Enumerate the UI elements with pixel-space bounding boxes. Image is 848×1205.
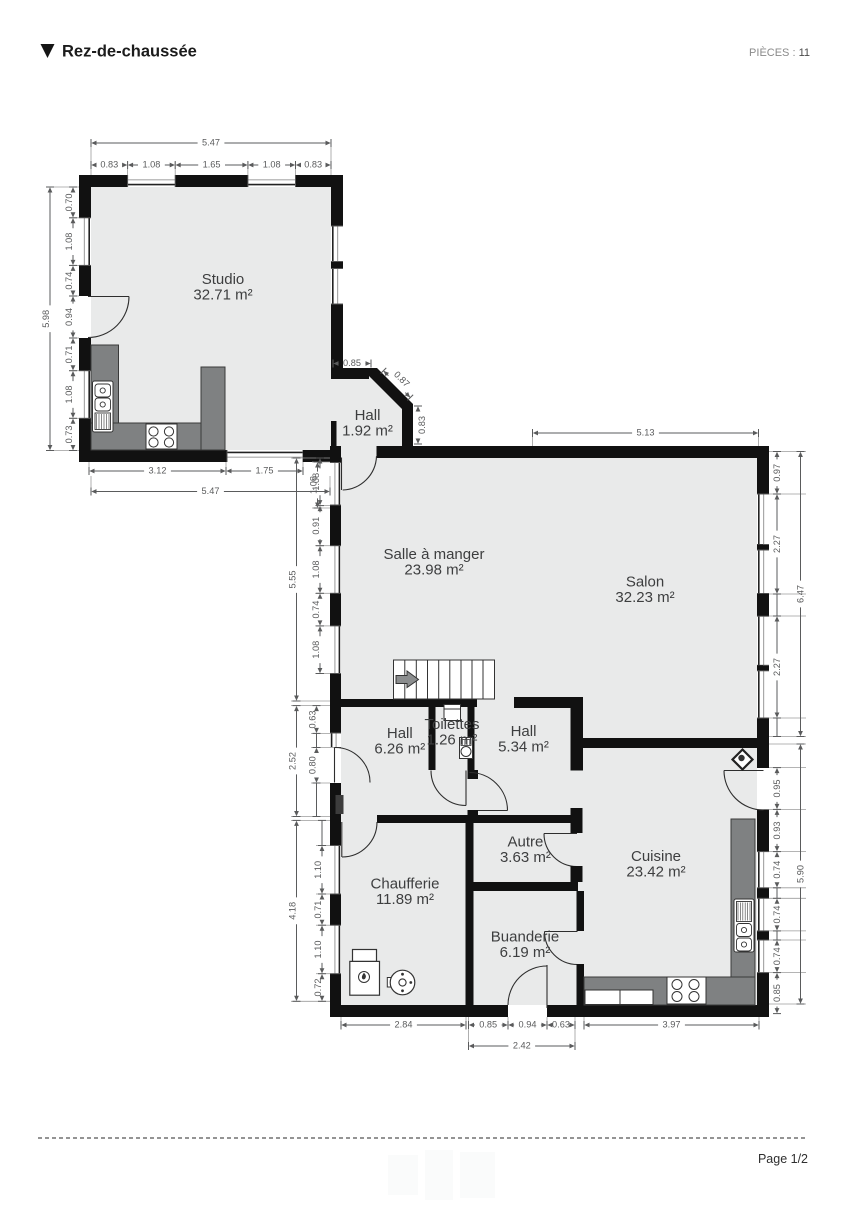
svg-text:0.71: 0.71 (313, 901, 323, 919)
svg-text:Hall: Hall (387, 725, 413, 742)
svg-text:Salon: Salon (626, 574, 664, 591)
svg-text:5.13: 5.13 (637, 428, 655, 438)
svg-text:1.75: 1.75 (256, 466, 274, 476)
svg-text:23.42 m²: 23.42 m² (626, 864, 685, 881)
svg-text:0.85: 0.85 (772, 984, 782, 1002)
svg-text:0.83: 0.83 (304, 160, 322, 170)
svg-text:1.10: 1.10 (313, 861, 323, 879)
svg-text:1.08: 1.08 (142, 160, 160, 170)
svg-text:Autre: Autre (507, 834, 543, 851)
svg-text:6.19 m²: 6.19 m² (500, 944, 551, 961)
svg-text:Page 1/2: Page 1/2 (758, 1152, 808, 1166)
svg-text:3.12: 3.12 (149, 466, 167, 476)
svg-text:0.74: 0.74 (772, 861, 782, 879)
svg-text:0.74: 0.74 (64, 272, 74, 290)
svg-text:2.42: 2.42 (513, 1041, 531, 1051)
svg-text:6.26 m²: 6.26 m² (374, 741, 425, 758)
svg-text:0.63: 0.63 (307, 711, 317, 729)
svg-text:1.08: 1.08 (311, 641, 321, 659)
svg-text:6.47: 6.47 (795, 585, 805, 603)
svg-text:2.52: 2.52 (287, 752, 297, 770)
svg-text:1.65: 1.65 (203, 160, 221, 170)
svg-text:Toilettes: Toilettes (424, 716, 479, 733)
svg-text:PIÈCES : 11: PIÈCES : 11 (749, 46, 810, 59)
svg-text:0.97: 0.97 (772, 464, 782, 482)
svg-text:0.63: 0.63 (552, 1020, 570, 1030)
svg-text:0.83: 0.83 (100, 160, 118, 170)
svg-text:5.90: 5.90 (795, 865, 805, 883)
svg-text:0.74: 0.74 (772, 947, 782, 965)
svg-text:Chaufferie: Chaufferie (371, 876, 440, 893)
svg-text:1.26 m²: 1.26 m² (427, 732, 478, 749)
svg-text:0.74: 0.74 (772, 906, 782, 924)
svg-text:0.93: 0.93 (772, 822, 782, 840)
svg-text:0.91: 0.91 (311, 517, 321, 535)
svg-text:0.70: 0.70 (64, 193, 74, 211)
svg-text:5.98: 5.98 (41, 310, 51, 328)
svg-text:1.08: 1.08 (64, 386, 74, 404)
svg-text:3.97: 3.97 (663, 1020, 681, 1030)
svg-text:0.85: 0.85 (343, 358, 361, 368)
svg-text:3.63 m²: 3.63 m² (500, 849, 551, 866)
svg-text:2.27: 2.27 (772, 658, 782, 676)
svg-text:32.23 m²: 32.23 m² (615, 589, 674, 606)
svg-text:Hall: Hall (355, 407, 381, 424)
svg-text:4.18: 4.18 (287, 902, 297, 920)
svg-text:5.34 m²: 5.34 m² (498, 739, 549, 756)
svg-text:Buanderie: Buanderie (491, 929, 559, 946)
svg-text:1.08: 1.08 (263, 160, 281, 170)
svg-text:0.94: 0.94 (519, 1020, 537, 1030)
svg-text:23.98 m²: 23.98 m² (404, 562, 463, 579)
svg-text:5.55: 5.55 (287, 571, 297, 589)
svg-text:0.94: 0.94 (64, 308, 74, 326)
svg-text:0.74: 0.74 (311, 601, 321, 619)
svg-text:5.47: 5.47 (202, 486, 220, 496)
svg-text:0.95: 0.95 (772, 780, 782, 798)
svg-text:1.08: 1.08 (311, 561, 321, 579)
svg-text:0.85: 0.85 (479, 1020, 497, 1030)
svg-text:0.73: 0.73 (64, 425, 74, 443)
svg-text:1.10: 1.10 (313, 941, 323, 959)
svg-text:2.84: 2.84 (395, 1020, 413, 1030)
svg-text:2.27: 2.27 (772, 535, 782, 553)
svg-text:Studio: Studio (202, 271, 245, 288)
svg-text:5.47: 5.47 (202, 138, 220, 148)
svg-text:Hall: Hall (511, 723, 537, 740)
svg-text:1.08: 1.08 (64, 233, 74, 251)
svg-text:1.08: 1.08 (311, 473, 321, 491)
svg-text:11.89 m²: 11.89 m² (376, 891, 434, 908)
svg-text:Salle à manger: Salle à manger (384, 546, 485, 563)
svg-text:1.92 m²: 1.92 m² (342, 423, 393, 440)
svg-text:0.72: 0.72 (313, 979, 323, 997)
svg-text:Cuisine: Cuisine (631, 848, 681, 865)
svg-text:Rez-de-chaussée: Rez-de-chaussée (62, 43, 197, 61)
svg-text:0.80: 0.80 (307, 756, 317, 774)
svg-text:32.71 m²: 32.71 m² (193, 287, 252, 304)
svg-text:0.83: 0.83 (417, 416, 427, 434)
svg-text:0.71: 0.71 (64, 345, 74, 363)
